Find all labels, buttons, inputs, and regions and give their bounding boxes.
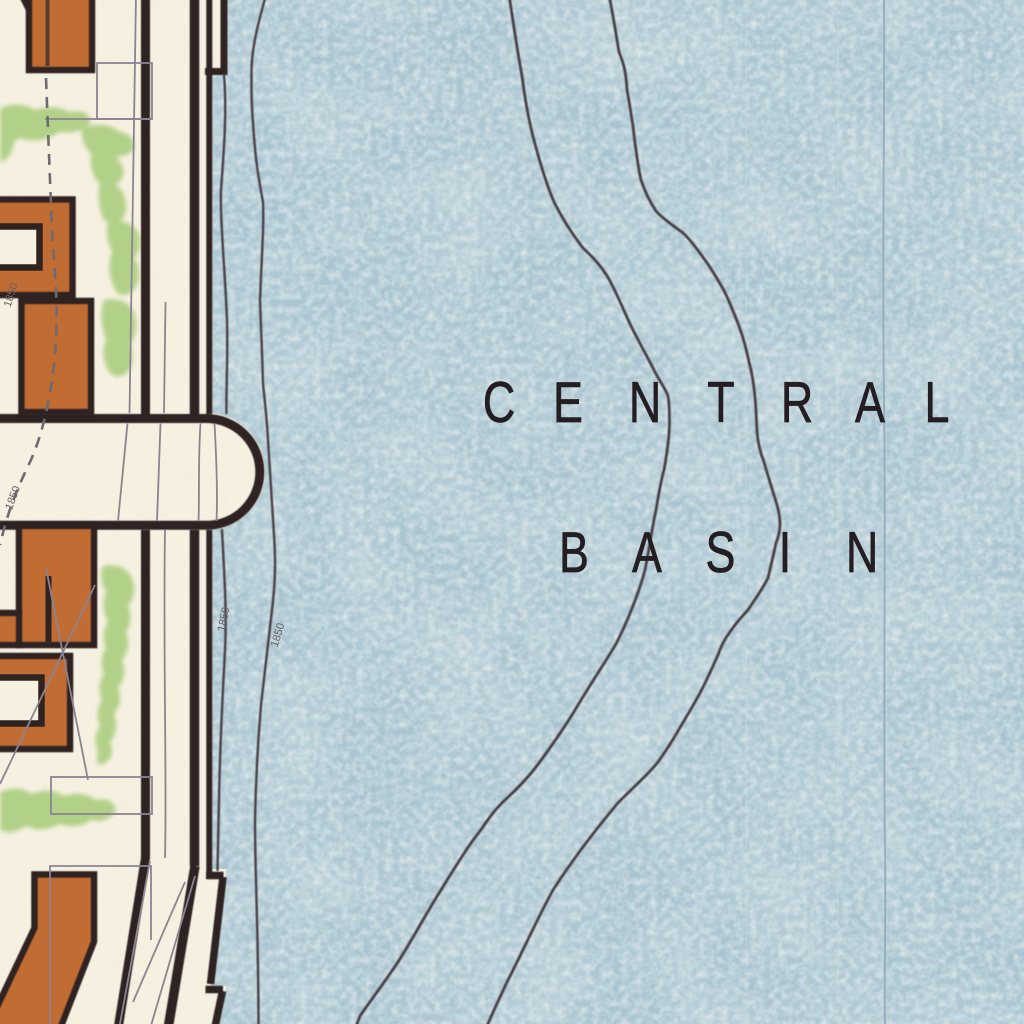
svg-text:B: B <box>559 520 589 585</box>
svg-text:E: E <box>553 370 583 435</box>
svg-text:N: N <box>846 520 878 585</box>
svg-text:C: C <box>483 370 515 435</box>
svg-text:N: N <box>629 370 661 435</box>
svg-text:A: A <box>855 370 885 435</box>
svg-text:R: R <box>781 370 813 435</box>
svg-text:I: I <box>779 520 791 585</box>
svg-text:L: L <box>925 370 950 435</box>
svg-text:T: T <box>707 370 734 435</box>
svg-text:S: S <box>706 520 736 585</box>
svg-text:A: A <box>632 520 662 585</box>
